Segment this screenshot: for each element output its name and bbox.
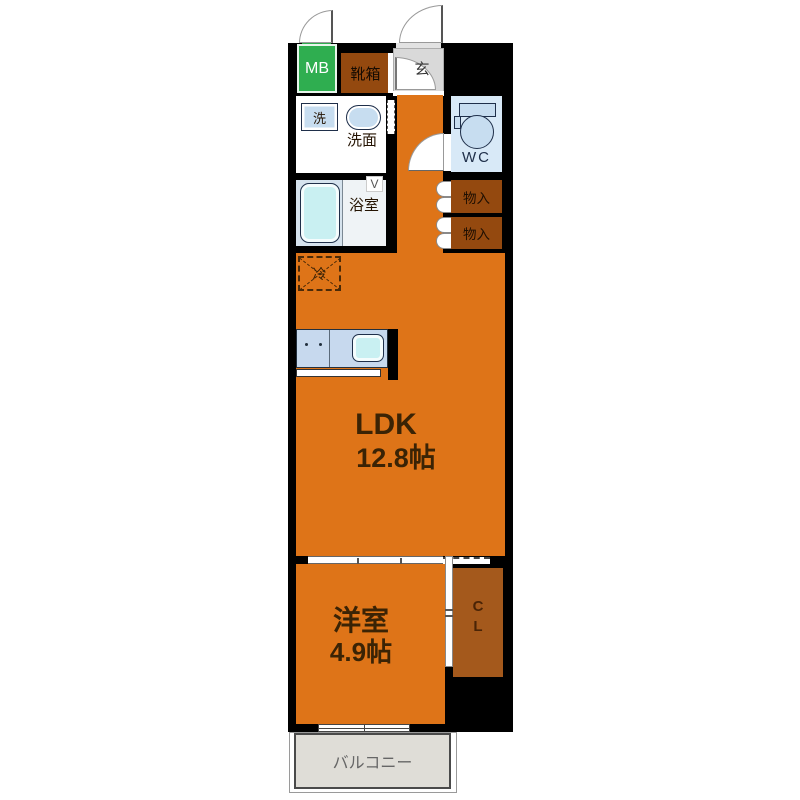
ldk-floor xyxy=(296,253,505,556)
washer-label: 洗 xyxy=(301,103,338,131)
kitchen-sink-icon xyxy=(352,334,384,362)
burner-dot-icon xyxy=(305,343,308,346)
hallway-floor xyxy=(397,95,443,258)
washroom-label: 洗面 xyxy=(338,131,386,147)
closet-door-tick xyxy=(445,615,453,617)
storage-upper-label: 物入 xyxy=(451,180,502,213)
counter-divider xyxy=(329,330,330,367)
storage-lower-door-icon xyxy=(436,217,451,233)
storage-upper-door-icon xyxy=(436,197,451,213)
balcony-label: バルコニー xyxy=(294,733,451,789)
shoe-box-label: 靴箱 xyxy=(341,53,390,93)
bathroom-label: 浴室 xyxy=(342,195,386,213)
counter-front-edge xyxy=(296,369,381,377)
storage-upper-door-icon xyxy=(436,181,451,197)
storage-lower-label: 物入 xyxy=(451,217,502,249)
toilet-button-icon xyxy=(454,116,461,129)
floorplan: MB 靴箱 玄 洗 洗面 WC 浴室 V 物入 物入 冷 xyxy=(0,0,800,800)
closet-label-c: C xyxy=(453,597,503,615)
closet-door-icon xyxy=(445,556,453,667)
entrance-label: 玄 xyxy=(411,58,433,78)
bathtub-icon xyxy=(300,183,340,243)
window-center-tick xyxy=(364,724,365,732)
toilet-door-gap xyxy=(443,134,451,171)
sliding-door-icon xyxy=(308,556,443,564)
ldk-area-label: 12.8帖 xyxy=(296,441,496,469)
toilet-label: WC xyxy=(451,148,502,166)
closet-door-tick xyxy=(445,609,453,611)
mb-door-swing-icon xyxy=(299,10,333,43)
refrigerator-label: 冷 xyxy=(298,256,341,291)
western-room-label: 洋室 xyxy=(296,604,426,634)
washroom-door-icon xyxy=(387,100,395,134)
front-door-swing-icon xyxy=(399,5,443,43)
closet-label-l: L xyxy=(453,617,503,635)
window-icon xyxy=(318,724,410,732)
burner-dot-icon xyxy=(319,343,322,346)
storage-lower-door-icon xyxy=(436,233,451,249)
kitchen-wall-stub xyxy=(388,329,398,380)
western-room-area-label: 4.9帖 xyxy=(296,636,426,664)
toilet-bowl-icon xyxy=(460,115,494,149)
meter-box-label: MB xyxy=(297,44,337,93)
basin-icon xyxy=(346,105,381,130)
bathroom-door-icon: V xyxy=(366,176,383,192)
